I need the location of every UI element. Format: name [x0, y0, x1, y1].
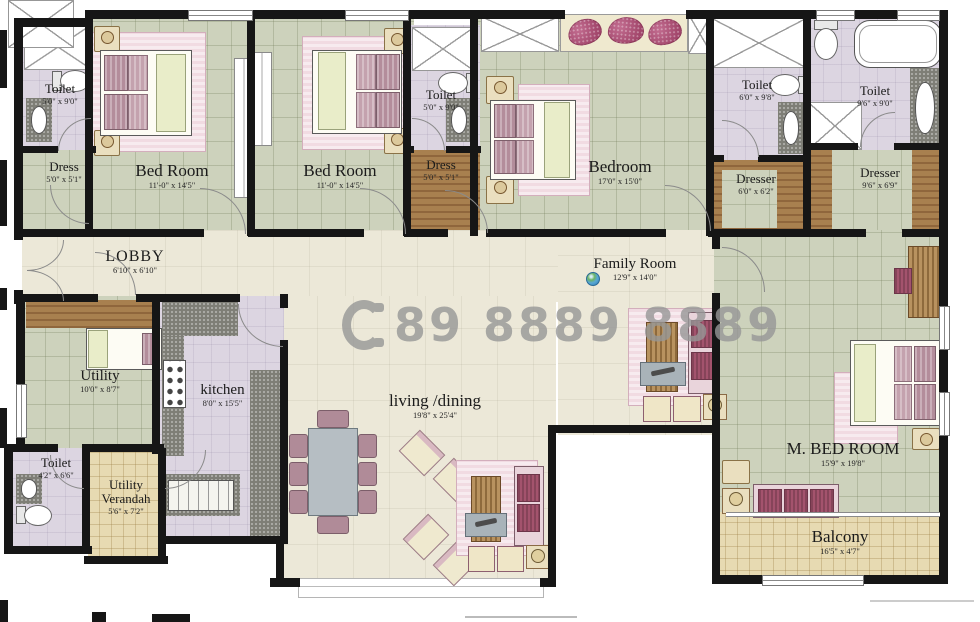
lamp-icon [494, 181, 507, 194]
room-name: Dress [34, 160, 94, 174]
room-dim: 9'6" x 9'0" [840, 99, 910, 108]
cushion [810, 489, 834, 513]
pillow [128, 94, 148, 130]
wall [712, 437, 720, 583]
dining-chair [358, 490, 377, 514]
pillow [894, 384, 912, 420]
cushion [517, 474, 540, 502]
watermark: 89 8889 8889 [342, 298, 782, 352]
wall [152, 296, 160, 454]
room-name: Utility Verandah [88, 478, 164, 506]
room-dim: 5'0" x 5'1" [34, 175, 94, 184]
wall [0, 408, 7, 448]
pillow [376, 92, 400, 128]
nightstand [486, 176, 514, 204]
cabinet [722, 460, 750, 484]
room-label-bedroom-1: Bed Room 11'-0" x 14'5" [112, 162, 232, 191]
living-sitout-step [298, 578, 544, 598]
wall [84, 556, 168, 564]
wall [247, 14, 255, 236]
phone-handset-icon [342, 300, 386, 350]
wall [4, 546, 92, 554]
room-name: Family Room [575, 256, 695, 272]
dining-chair [289, 434, 308, 458]
pillow [494, 140, 516, 174]
room-label-toilet-2: Toilet 5'0" x 9'0" [408, 88, 474, 112]
pillow [914, 346, 936, 382]
room-label-master-bedroom: M. BED ROOM 15'9" x 19'8" [768, 440, 918, 469]
room-name: Toilet [722, 78, 792, 92]
window [345, 10, 409, 21]
pillow [104, 55, 128, 91]
lobby-cabinet [26, 300, 158, 328]
wall [548, 425, 556, 587]
wall [85, 10, 188, 19]
floor-plan: Toilet 5'0" x 9'0" Dress 5'0" x 5'1" Bed… [0, 0, 980, 622]
wall [14, 146, 58, 153]
dining-chair [289, 462, 308, 486]
room-dim: 6'0" x 6'2" [718, 187, 794, 196]
room-label-bedroom-3: Bedroom 17'0" x 15'0" [560, 158, 680, 187]
room-name: Toilet [840, 84, 910, 98]
wall [280, 340, 288, 544]
wall [158, 536, 288, 544]
cushion [784, 489, 808, 513]
room-label-dresser-2: Dresser 9'6" x 6'9" [842, 166, 918, 190]
window [16, 384, 27, 438]
room-dim: 16'5" x 4'7" [790, 547, 890, 556]
wc-icon [24, 505, 52, 526]
room-name: Toilet [24, 456, 88, 470]
wall [407, 10, 565, 19]
ottoman [673, 396, 701, 422]
wall [0, 288, 7, 310]
room-name: Utility [60, 368, 140, 384]
room-name: Dress [406, 158, 476, 172]
wall [486, 229, 666, 237]
room-label-toilet-4: Toilet 9'6" x 9'0" [840, 84, 910, 108]
wall [276, 544, 284, 587]
dining-chair [289, 490, 308, 514]
room-dim: 6'0" x 9'8" [722, 93, 792, 102]
lamp-icon [101, 135, 114, 148]
sliding-glass-door [726, 512, 940, 517]
room-label-bedroom-2: Bed Room 11'-0" x 14'5" [280, 162, 400, 191]
wall [862, 575, 948, 584]
lamp-icon [920, 433, 933, 446]
room-dim: 19'8" x 25'4" [370, 411, 500, 420]
ottoman [497, 546, 524, 572]
wall [712, 229, 720, 249]
pillow [356, 54, 376, 90]
wall [403, 14, 411, 236]
wall [14, 18, 92, 27]
remote-icon [651, 367, 676, 377]
wc-icon [814, 28, 838, 60]
decor-icon [531, 549, 545, 563]
wall [14, 18, 23, 240]
wall [706, 14, 714, 236]
dining-chair [358, 462, 377, 486]
room-dim: 6'10" x 6'10" [80, 266, 190, 275]
pillow [516, 140, 534, 174]
wall [803, 143, 858, 150]
wall [540, 578, 556, 587]
coffee-table [640, 362, 686, 386]
ottoman [468, 546, 495, 572]
wall [853, 10, 897, 19]
basin-bowl [31, 106, 48, 134]
washbasin [910, 68, 940, 148]
room-label-utility: Utility 10'0" x 8'7" [60, 368, 140, 394]
window [188, 10, 253, 21]
shower-icon [712, 18, 806, 68]
wall [251, 10, 345, 19]
window [897, 10, 940, 21]
room-dim: 11'-0" x 14'5" [112, 181, 232, 190]
room-dim: 11'-0" x 14'5" [280, 181, 400, 190]
wall [0, 160, 7, 226]
room-label-utility-verandah: Utility Verandah 5'6" x 7'2" [88, 478, 164, 516]
study-desk [908, 246, 940, 318]
wall [446, 146, 481, 153]
room-name: Balcony [790, 528, 890, 546]
wall [939, 14, 948, 306]
wall [152, 614, 190, 622]
wall [4, 444, 58, 452]
room-dim: 10'0" x 8'7" [60, 385, 140, 394]
globe-icon [586, 272, 600, 286]
wardrobe-crossed [481, 16, 559, 52]
dining-chair [317, 516, 349, 534]
room-name: Bedroom [560, 158, 680, 176]
pillow [494, 104, 516, 138]
wall [758, 155, 811, 162]
wall [712, 575, 762, 584]
watermark-phone-number: 89 8889 8889 [394, 298, 782, 352]
room-name: Dresser [842, 166, 918, 180]
room-name: Bed Room [112, 162, 232, 180]
room-dim: 15'9" x 19'8" [768, 459, 918, 468]
lamp-icon [494, 81, 507, 94]
room-dim: 5'0" x 5'1" [406, 173, 476, 182]
wall [0, 600, 8, 622]
wall [248, 229, 364, 237]
desk-chair [894, 268, 912, 294]
room-label-lobby: LOBBY 6'10" x 6'10" [80, 248, 190, 275]
pillow [376, 54, 400, 90]
room-label-living-dining: living /dining 19'8" x 25'4" [370, 392, 500, 421]
ottoman [643, 396, 671, 422]
room-name: LOBBY [80, 248, 190, 265]
cushion [691, 352, 713, 380]
basin-bowl [21, 479, 38, 498]
wall [465, 616, 577, 618]
window [939, 306, 950, 350]
room-name: Dresser [718, 172, 794, 186]
bathtub-inner [859, 25, 937, 63]
lamp-icon [101, 31, 114, 44]
blanket [854, 344, 876, 422]
wall [939, 348, 948, 392]
room-dim: 8'0" x 15'5" [180, 399, 265, 408]
room-name: Toilet [408, 88, 474, 102]
room-label-toilet-3: Toilet 6'0" x 9'8" [722, 78, 792, 102]
room-dim: 5'6" x 7'2" [88, 507, 164, 516]
cushion [758, 489, 782, 513]
dining-chair [358, 434, 377, 458]
pillow [894, 346, 912, 382]
lamp-icon [391, 133, 404, 146]
pillow [356, 92, 376, 128]
phone-mouthpiece [373, 338, 384, 347]
nightstand [94, 26, 120, 52]
room-dim: 4'2" x 6'6" [24, 471, 88, 480]
dining-table [308, 428, 358, 516]
room-label-toilet-1: Toilet 5'0" x 9'0" [28, 82, 92, 106]
pillow [914, 384, 936, 420]
blanket [156, 54, 186, 132]
room-dim: 5'0" x 9'0" [28, 97, 92, 106]
blanket [318, 52, 346, 130]
blanket [88, 330, 108, 368]
room-label-toilet-5: Toilet 4'2" x 6'6" [24, 456, 88, 480]
pillow [516, 104, 534, 138]
room-label-kitchen: kitchen 8'0" x 15'5" [180, 382, 265, 408]
room-label-balcony: Balcony 16'5" x 4'7" [790, 528, 890, 557]
wall [136, 294, 240, 302]
bathtub [854, 20, 942, 68]
wall [0, 30, 7, 88]
basin-bowl [783, 111, 800, 144]
wall [550, 425, 720, 433]
shower-icon [412, 27, 474, 71]
cushion [517, 504, 540, 532]
coffee-table [465, 513, 507, 537]
phone-earpiece [373, 303, 384, 312]
room-dim: 9'6" x 6'9" [842, 181, 918, 190]
room-name: kitchen [180, 382, 265, 398]
room-name: Toilet [28, 82, 92, 96]
wardrobe [252, 52, 272, 146]
basin-bowl [915, 82, 934, 133]
room-dim: 5'0" x 9'0" [408, 103, 474, 112]
side-table [526, 545, 550, 569]
window [816, 10, 855, 21]
window [762, 575, 864, 586]
room-label-dresser-1: Dresser 6'0" x 6'2" [718, 172, 794, 196]
room-label-dress-2: Dress 5'0" x 5'1" [406, 158, 476, 182]
wall [758, 229, 866, 237]
kitchen-counter-top [162, 302, 238, 336]
wall [803, 14, 811, 237]
wall [4, 444, 13, 554]
cabinet [722, 488, 750, 514]
room-name: living /dining [370, 392, 500, 410]
decor-icon [729, 492, 743, 506]
dining-chair [317, 410, 349, 428]
room-label-dress-1: Dress 5'0" x 5'1" [34, 160, 94, 184]
room-name: M. BED ROOM [768, 440, 918, 458]
wall [939, 434, 948, 583]
pillow [128, 55, 148, 91]
washbasin [778, 102, 804, 154]
room-dim: 17'0" x 15'0" [560, 177, 680, 186]
wall [14, 229, 204, 237]
window [939, 392, 950, 436]
wall [270, 578, 300, 587]
pillow [104, 94, 128, 130]
wall [870, 600, 974, 602]
wall [92, 612, 106, 622]
lamp-icon [391, 33, 404, 46]
remote-icon [475, 518, 498, 527]
wall [16, 296, 25, 384]
room-name: Bed Room [280, 162, 400, 180]
